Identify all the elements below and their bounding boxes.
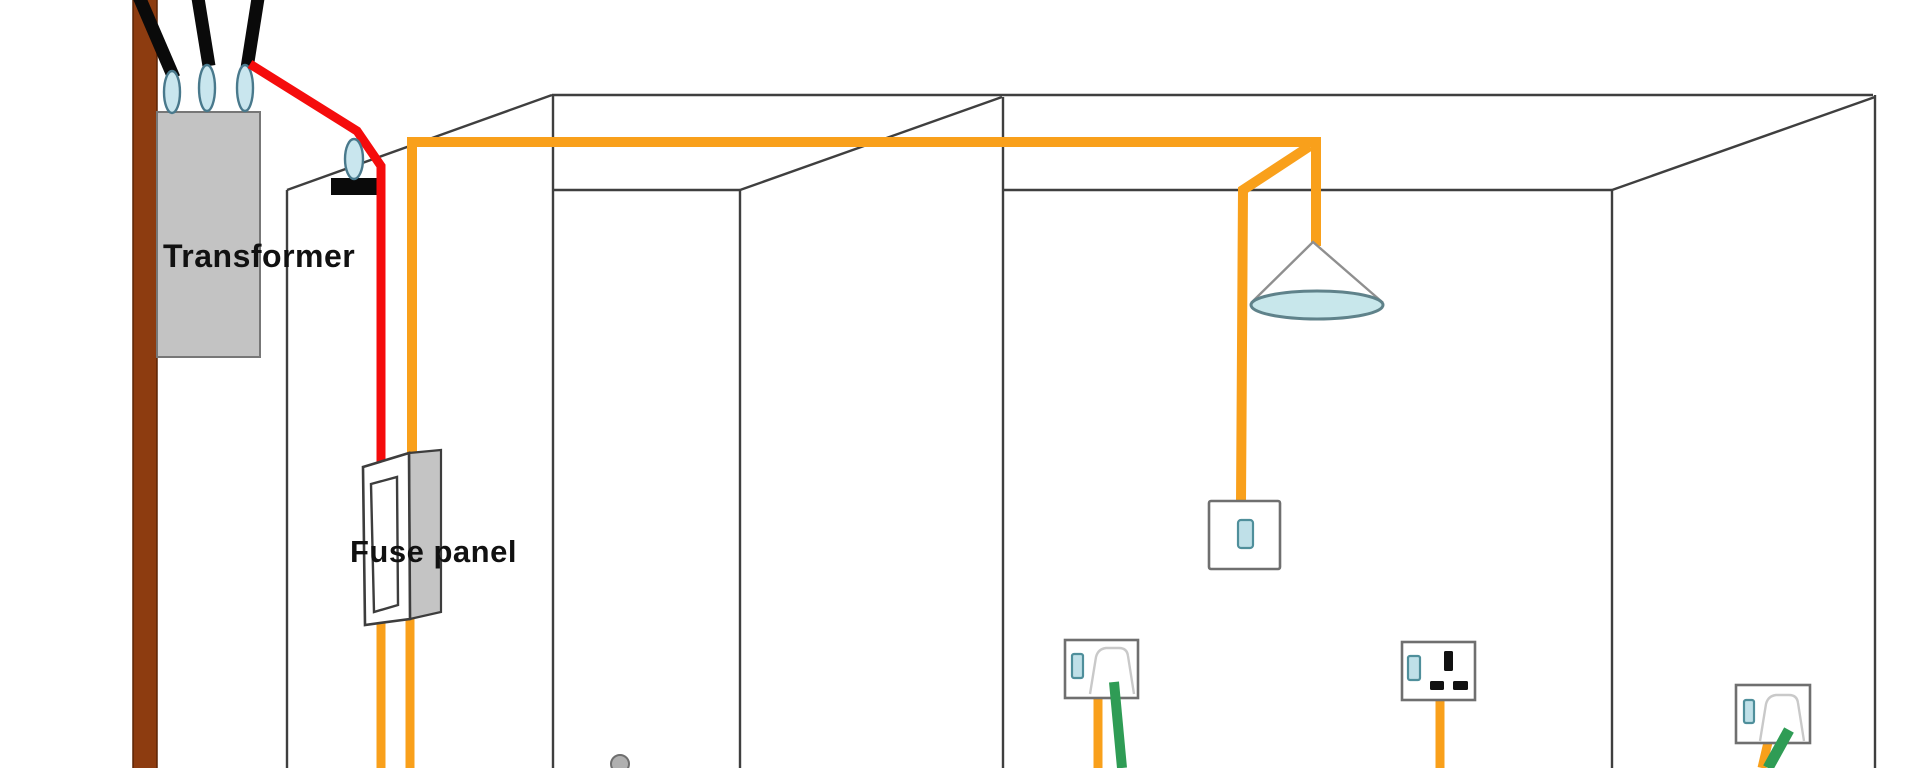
insulator-icon: [199, 65, 215, 111]
door-knob: [611, 755, 629, 768]
socket3-switch-toggle[interactable]: [1744, 700, 1754, 723]
insulator-icon: [164, 71, 180, 113]
socket2-earth-slot-icon: [1444, 651, 1453, 671]
service-cable-3: [247, 0, 259, 68]
utility-pole: [133, 0, 157, 768]
switch-toggle-icon[interactable]: [1238, 520, 1253, 548]
insulator-icon: [237, 65, 253, 111]
socket1-switch-toggle[interactable]: [1072, 654, 1083, 678]
lamp-shade: [1251, 291, 1383, 319]
diagram-canvas: Transformer Fuse panel: [0, 0, 1918, 768]
ceiling-lamp: [1251, 242, 1383, 319]
fuse-panel-label: Fuse panel: [350, 534, 517, 569]
wall-socket-2[interactable]: [1402, 642, 1475, 700]
socket2-live-slot-icon: [1430, 681, 1444, 690]
wall-socket-3[interactable]: [1736, 685, 1810, 768]
light-switch[interactable]: [1209, 501, 1280, 569]
socket2-switch-toggle[interactable]: [1408, 656, 1420, 680]
transformer-box: [157, 112, 260, 357]
service-cable-2: [197, 0, 209, 66]
socket2-neutral-slot-icon: [1453, 681, 1468, 690]
wiring-diagram: Transformer Fuse panel: [0, 0, 1918, 768]
switch-branch-wire: [1241, 146, 1310, 502]
house-insulator-icon: [345, 139, 363, 179]
service-entry-bracket: [331, 178, 383, 195]
right-roof-edge: [1612, 97, 1875, 190]
transformer-label: Transformer: [163, 238, 355, 274]
